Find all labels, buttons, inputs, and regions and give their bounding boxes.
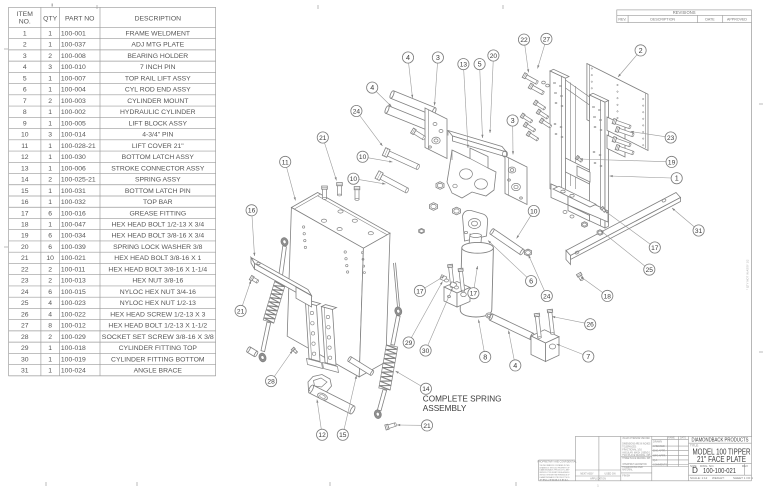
svg-text:14: 14	[422, 386, 430, 393]
svg-text:27: 27	[21, 323, 29, 330]
svg-text:100-023: 100-023	[61, 300, 86, 307]
svg-text:1: 1	[23, 30, 27, 37]
svg-text:SHEET 1 OF 1: SHEET 1 OF 1	[733, 476, 753, 480]
svg-text:MFG APPR.: MFG APPR.	[653, 454, 666, 457]
svg-text:28: 28	[267, 379, 275, 386]
svg-text:NO.: NO.	[19, 19, 31, 26]
svg-text:26: 26	[21, 311, 29, 318]
svg-text:1: 1	[48, 120, 52, 127]
svg-text:HEX HEAD BOLT 3/8-16 X 3/4: HEX HEAD BOLT 3/8-16 X 3/4	[111, 233, 204, 240]
svg-text:24: 24	[353, 108, 361, 115]
svg-text:15: 15	[21, 188, 29, 195]
svg-text:COMPLETE SPRING: COMPLETE SPRING	[423, 395, 502, 404]
svg-text:2: 2	[48, 266, 52, 273]
svg-text:11: 11	[282, 159, 289, 166]
svg-text:100-031: 100-031	[61, 188, 86, 195]
svg-text:1: 1	[48, 199, 52, 206]
svg-text:100-100-021: 100-100-021	[703, 466, 736, 475]
svg-text:29: 29	[21, 345, 29, 352]
svg-text:ASSEMBLY: ASSEMBLY	[423, 404, 467, 413]
svg-text:6: 6	[48, 233, 52, 240]
svg-text:100-015: 100-015	[61, 289, 86, 296]
svg-text:6: 6	[23, 87, 27, 94]
svg-text:APPROVED: APPROVED	[727, 18, 747, 22]
svg-text:20: 20	[490, 53, 498, 60]
svg-text:4: 4	[513, 361, 517, 370]
svg-text:16: 16	[21, 199, 29, 206]
svg-text:APPLICATION: APPLICATION	[590, 477, 606, 480]
svg-text:D: D	[692, 466, 698, 475]
svg-text:1: 1	[48, 87, 52, 94]
svg-text:4: 4	[23, 64, 27, 71]
svg-text:17: 17	[651, 245, 659, 252]
svg-text:FRAME WELDMENT: FRAME WELDMENT	[126, 30, 191, 37]
svg-text:1: 1	[48, 368, 52, 375]
svg-text:3: 3	[48, 64, 52, 71]
svg-text:100-029: 100-029	[61, 334, 86, 341]
svg-text:HEX HEAD SCREW 1/2-13 X 3: HEX HEAD SCREW 1/2-13 X 3	[110, 311, 205, 318]
svg-text:COMMENTS:: COMMENTS:	[653, 464, 668, 467]
svg-text:NYLOC HEX NUT 3/4-16: NYLOC HEX NUT 3/4-16	[120, 289, 196, 296]
svg-text:6: 6	[529, 277, 533, 286]
svg-text:2: 2	[48, 98, 52, 105]
svg-text:SPRING LOCK WASHER 3/8: SPRING LOCK WASHER 3/8	[113, 244, 202, 251]
svg-text:NEXT ASSY: NEXT ASSY	[580, 472, 594, 475]
svg-text:USED ON: USED ON	[605, 472, 616, 475]
svg-text:16: 16	[248, 208, 256, 215]
svg-text:HEX HEAD BOLT 1/2-13 X 1-1/2: HEX HEAD BOLT 1/2-13 X 1-1/2	[108, 323, 207, 330]
svg-text:DRAWN: DRAWN	[653, 441, 662, 444]
svg-text:17: 17	[416, 288, 424, 295]
svg-text:3: 3	[436, 53, 440, 62]
svg-text:THREE PLACE DECIMAL .005: THREE PLACE DECIMAL .005	[622, 457, 651, 460]
svg-text:100-012: 100-012	[61, 323, 86, 330]
svg-text:7 INCH PIN: 7 INCH PIN	[140, 64, 176, 71]
svg-text:SPRING ASSY: SPRING ASSY	[135, 177, 181, 184]
svg-text:100-010: 100-010	[61, 64, 86, 71]
svg-text:6: 6	[48, 210, 52, 217]
svg-text:19: 19	[668, 159, 676, 166]
svg-text:SCALE: 1:12: SCALE: 1:12	[690, 476, 708, 480]
svg-text:1: 1	[48, 109, 52, 116]
svg-text:4: 4	[48, 311, 52, 318]
svg-text:CYLINDER MOUNT: CYLINDER MOUNT	[127, 98, 188, 105]
svg-text:100-047: 100-047	[61, 222, 86, 229]
svg-text:LIFT COVER 21": LIFT COVER 21"	[132, 143, 184, 150]
svg-text:HEX NUT 3/8-16: HEX NUT 3/8-16	[132, 278, 183, 285]
svg-text:100-007: 100-007	[61, 75, 86, 82]
svg-text:23: 23	[21, 278, 29, 285]
svg-text:1: 1	[48, 154, 52, 161]
svg-text:13: 13	[21, 165, 29, 172]
svg-text:21: 21	[319, 135, 327, 142]
svg-text:100-016: 100-016	[61, 210, 86, 217]
svg-text:11: 11	[21, 143, 28, 150]
svg-text:27: 27	[543, 36, 551, 43]
svg-text:1: 1	[48, 356, 52, 363]
svg-text:BOTTOM LATCH ASSY: BOTTOM LATCH ASSY	[122, 154, 195, 161]
svg-text:19: 19	[21, 233, 29, 240]
svg-text:12: 12	[318, 432, 326, 439]
svg-text:REV: REV	[742, 464, 748, 468]
svg-text:30: 30	[422, 348, 430, 355]
svg-text:100-028-21: 100-028-21	[61, 143, 96, 150]
svg-text:8: 8	[483, 352, 487, 361]
svg-text:7: 7	[586, 352, 590, 361]
svg-text:100-037: 100-037	[61, 42, 86, 49]
svg-text:15: 15	[339, 432, 347, 439]
svg-text:18: 18	[604, 293, 612, 300]
svg-text:DESCRIPTION: DESCRIPTION	[650, 18, 675, 22]
svg-text:20: 20	[21, 244, 29, 251]
svg-text:3: 3	[48, 132, 52, 139]
svg-text:12: 12	[21, 154, 29, 161]
svg-text:1: 1	[48, 42, 52, 49]
svg-text:100-032: 100-032	[61, 199, 86, 206]
svg-text:6: 6	[48, 244, 52, 251]
svg-text:100-039: 100-039	[61, 244, 86, 251]
svg-text:10: 10	[46, 255, 54, 262]
svg-text:100-019: 100-019	[61, 356, 86, 363]
svg-text:ITEM: ITEM	[17, 11, 34, 18]
svg-text:NYLOC HEX NUT 1/2-13: NYLOC HEX NUT 1/2-13	[120, 300, 196, 307]
svg-text:WEIGHT:: WEIGHT:	[712, 476, 725, 480]
svg-text:22: 22	[520, 37, 528, 44]
svg-text:100-025-21: 100-025-21	[61, 177, 96, 184]
svg-text:24: 24	[21, 289, 29, 296]
svg-text:21: 21	[423, 423, 431, 430]
svg-text:23: 23	[667, 135, 675, 142]
svg-text:17: 17	[470, 291, 478, 298]
svg-text:100-001: 100-001	[61, 30, 86, 37]
svg-text:CYLINDER FITTING BOTTOM: CYLINDER FITTING BOTTOM	[111, 356, 205, 363]
svg-text:28: 28	[21, 334, 29, 341]
svg-text:DIAMONDBACK PRODUCTS: DIAMONDBACK PRODUCTS	[692, 437, 749, 443]
svg-text:STROKE CONNECTOR ASSY: STROKE CONNECTOR ASSY	[111, 165, 205, 172]
svg-text:4: 4	[370, 83, 374, 92]
svg-text:1: 1	[48, 345, 52, 352]
svg-text:GREASE FITTING: GREASE FITTING	[129, 210, 186, 217]
svg-text:5: 5	[478, 60, 482, 69]
svg-text:CYLINDER FITTING TOP: CYLINDER FITTING TOP	[119, 345, 198, 352]
svg-text:2: 2	[639, 46, 643, 55]
svg-text:CHECKED: CHECKED	[653, 445, 665, 448]
svg-text:ANGLE BRACE: ANGLE BRACE	[134, 368, 183, 375]
svg-text:SOCKET SET SCREW 3/8-16 X 3/8: SOCKET SET SCREW 3/8-16 X 3/8	[102, 334, 214, 341]
svg-text:1: 1	[48, 222, 52, 229]
svg-text:HEX HEAD BOLT 3/8-16 X 1: HEX HEAD BOLT 3/8-16 X 1	[114, 255, 201, 262]
svg-text:1: 1	[48, 188, 52, 195]
svg-text:PROPRIETARY AND CONFIDENTIAL: PROPRIETARY AND CONFIDENTIAL	[537, 461, 577, 464]
svg-text:10: 10	[359, 154, 367, 161]
svg-text:QTY: QTY	[43, 15, 57, 22]
svg-text:* QTY NOT IN ASSY 1/2: * QTY NOT IN ASSY 1/2	[746, 259, 750, 290]
svg-text:100-030: 100-030	[61, 154, 86, 161]
svg-text:HEX HEAD BOLT 1/2-13 X 3/4: HEX HEAD BOLT 1/2-13 X 3/4	[111, 222, 204, 229]
svg-text:BEARING HOLDER: BEARING HOLDER	[127, 53, 188, 60]
svg-text:18: 18	[21, 222, 29, 229]
svg-text:31: 31	[21, 368, 29, 375]
svg-text:13: 13	[460, 62, 468, 69]
svg-text:1: 1	[48, 165, 52, 172]
svg-text:100-014: 100-014	[61, 132, 86, 139]
svg-text:21" FACE PLATE: 21" FACE PLATE	[697, 454, 746, 464]
svg-text:1: 1	[675, 174, 679, 183]
svg-text:100-013: 100-013	[61, 278, 86, 285]
svg-text:5: 5	[23, 75, 27, 82]
svg-text:2: 2	[48, 278, 52, 285]
svg-text:6: 6	[48, 289, 52, 296]
svg-text:4-3/4" PIN: 4-3/4" PIN	[142, 132, 173, 139]
svg-text:100-002: 100-002	[61, 109, 86, 116]
svg-text:1: 1	[48, 143, 52, 150]
svg-text:7: 7	[23, 98, 27, 105]
svg-text:100-003: 100-003	[61, 98, 86, 105]
svg-text:2: 2	[48, 177, 52, 184]
svg-text:8: 8	[48, 323, 52, 330]
svg-text:HEX HEAD BOLT 3/8-16 X 1-1/4: HEX HEAD BOLT 3/8-16 X 1-1/4	[108, 266, 207, 273]
svg-text:100-034: 100-034	[61, 233, 86, 240]
svg-text:ENG APPR.: ENG APPR.	[653, 450, 666, 453]
svg-text:25: 25	[21, 300, 29, 307]
svg-text:1: 1	[48, 30, 52, 37]
svg-text:REV.: REV.	[618, 18, 626, 22]
svg-text:100-008: 100-008	[61, 53, 86, 60]
svg-text:1: 1	[48, 75, 52, 82]
svg-text:9: 9	[23, 120, 27, 127]
svg-text:REVISIONS: REVISIONS	[673, 10, 696, 15]
svg-text:26: 26	[587, 322, 595, 329]
svg-text:4: 4	[406, 53, 410, 62]
svg-text:100-004: 100-004	[61, 87, 86, 94]
svg-text:17: 17	[21, 210, 29, 217]
svg-text:HYDRAULIC CYLINDER: HYDRAULIC CYLINDER	[120, 109, 196, 116]
svg-text:100-018: 100-018	[61, 345, 86, 352]
svg-text:PROHIBITED.: PROHIBITED.	[540, 480, 571, 482]
svg-text:100-006: 100-006	[61, 165, 86, 172]
svg-text:100-011: 100-011	[61, 266, 86, 273]
svg-text:ADJ MTG PLATE: ADJ MTG PLATE	[131, 42, 184, 49]
svg-text:10: 10	[530, 208, 538, 215]
svg-text:FINISH: FINISH	[622, 475, 630, 478]
svg-text:21: 21	[21, 255, 29, 262]
svg-text:24: 24	[543, 293, 551, 300]
svg-text:100-024: 100-024	[61, 368, 86, 375]
svg-text:DATE: DATE	[705, 18, 715, 22]
svg-text:DATE: DATE	[680, 436, 686, 439]
svg-text:TOP RAIL LIFT ASSY: TOP RAIL LIFT ASSY	[125, 75, 191, 82]
svg-text:UNLESS OTHERWISE SPECIFIED:: UNLESS OTHERWISE SPECIFIED:	[622, 437, 650, 440]
svg-text:30: 30	[21, 356, 29, 363]
svg-text:BOTTOM LATCH PIN: BOTTOM LATCH PIN	[125, 188, 191, 195]
svg-text:21: 21	[237, 308, 245, 315]
svg-text:10: 10	[350, 176, 358, 183]
svg-text:CYL ROD END ASSY: CYL ROD END ASSY	[125, 87, 191, 94]
svg-text:MATERIAL: MATERIAL	[622, 469, 633, 472]
svg-text:PART NO: PART NO	[65, 15, 94, 22]
svg-text:25: 25	[646, 267, 654, 274]
svg-text:29: 29	[405, 340, 413, 347]
svg-text:100-005: 100-005	[61, 120, 86, 127]
svg-text:NAME: NAME	[668, 436, 675, 439]
svg-text:DESCRIPTION: DESCRIPTION	[135, 15, 182, 22]
svg-text:LIFT BLOCK ASSY: LIFT BLOCK ASSY	[129, 120, 188, 127]
svg-text:2: 2	[48, 53, 52, 60]
svg-text:31: 31	[695, 228, 703, 235]
svg-text:2: 2	[48, 334, 52, 341]
svg-text:14: 14	[21, 177, 29, 184]
svg-text:10: 10	[21, 132, 29, 139]
svg-text:100-021: 100-021	[61, 255, 86, 262]
svg-text:3: 3	[23, 53, 27, 60]
svg-text:22: 22	[21, 266, 29, 273]
svg-text:100-022: 100-022	[61, 311, 86, 318]
svg-text:3: 3	[511, 116, 515, 125]
svg-text:Q.A.: Q.A.	[653, 459, 658, 462]
svg-text:4: 4	[48, 300, 52, 307]
svg-text:2: 2	[23, 42, 27, 49]
svg-text:TOP BAR: TOP BAR	[143, 199, 173, 206]
svg-text:8: 8	[23, 109, 27, 116]
